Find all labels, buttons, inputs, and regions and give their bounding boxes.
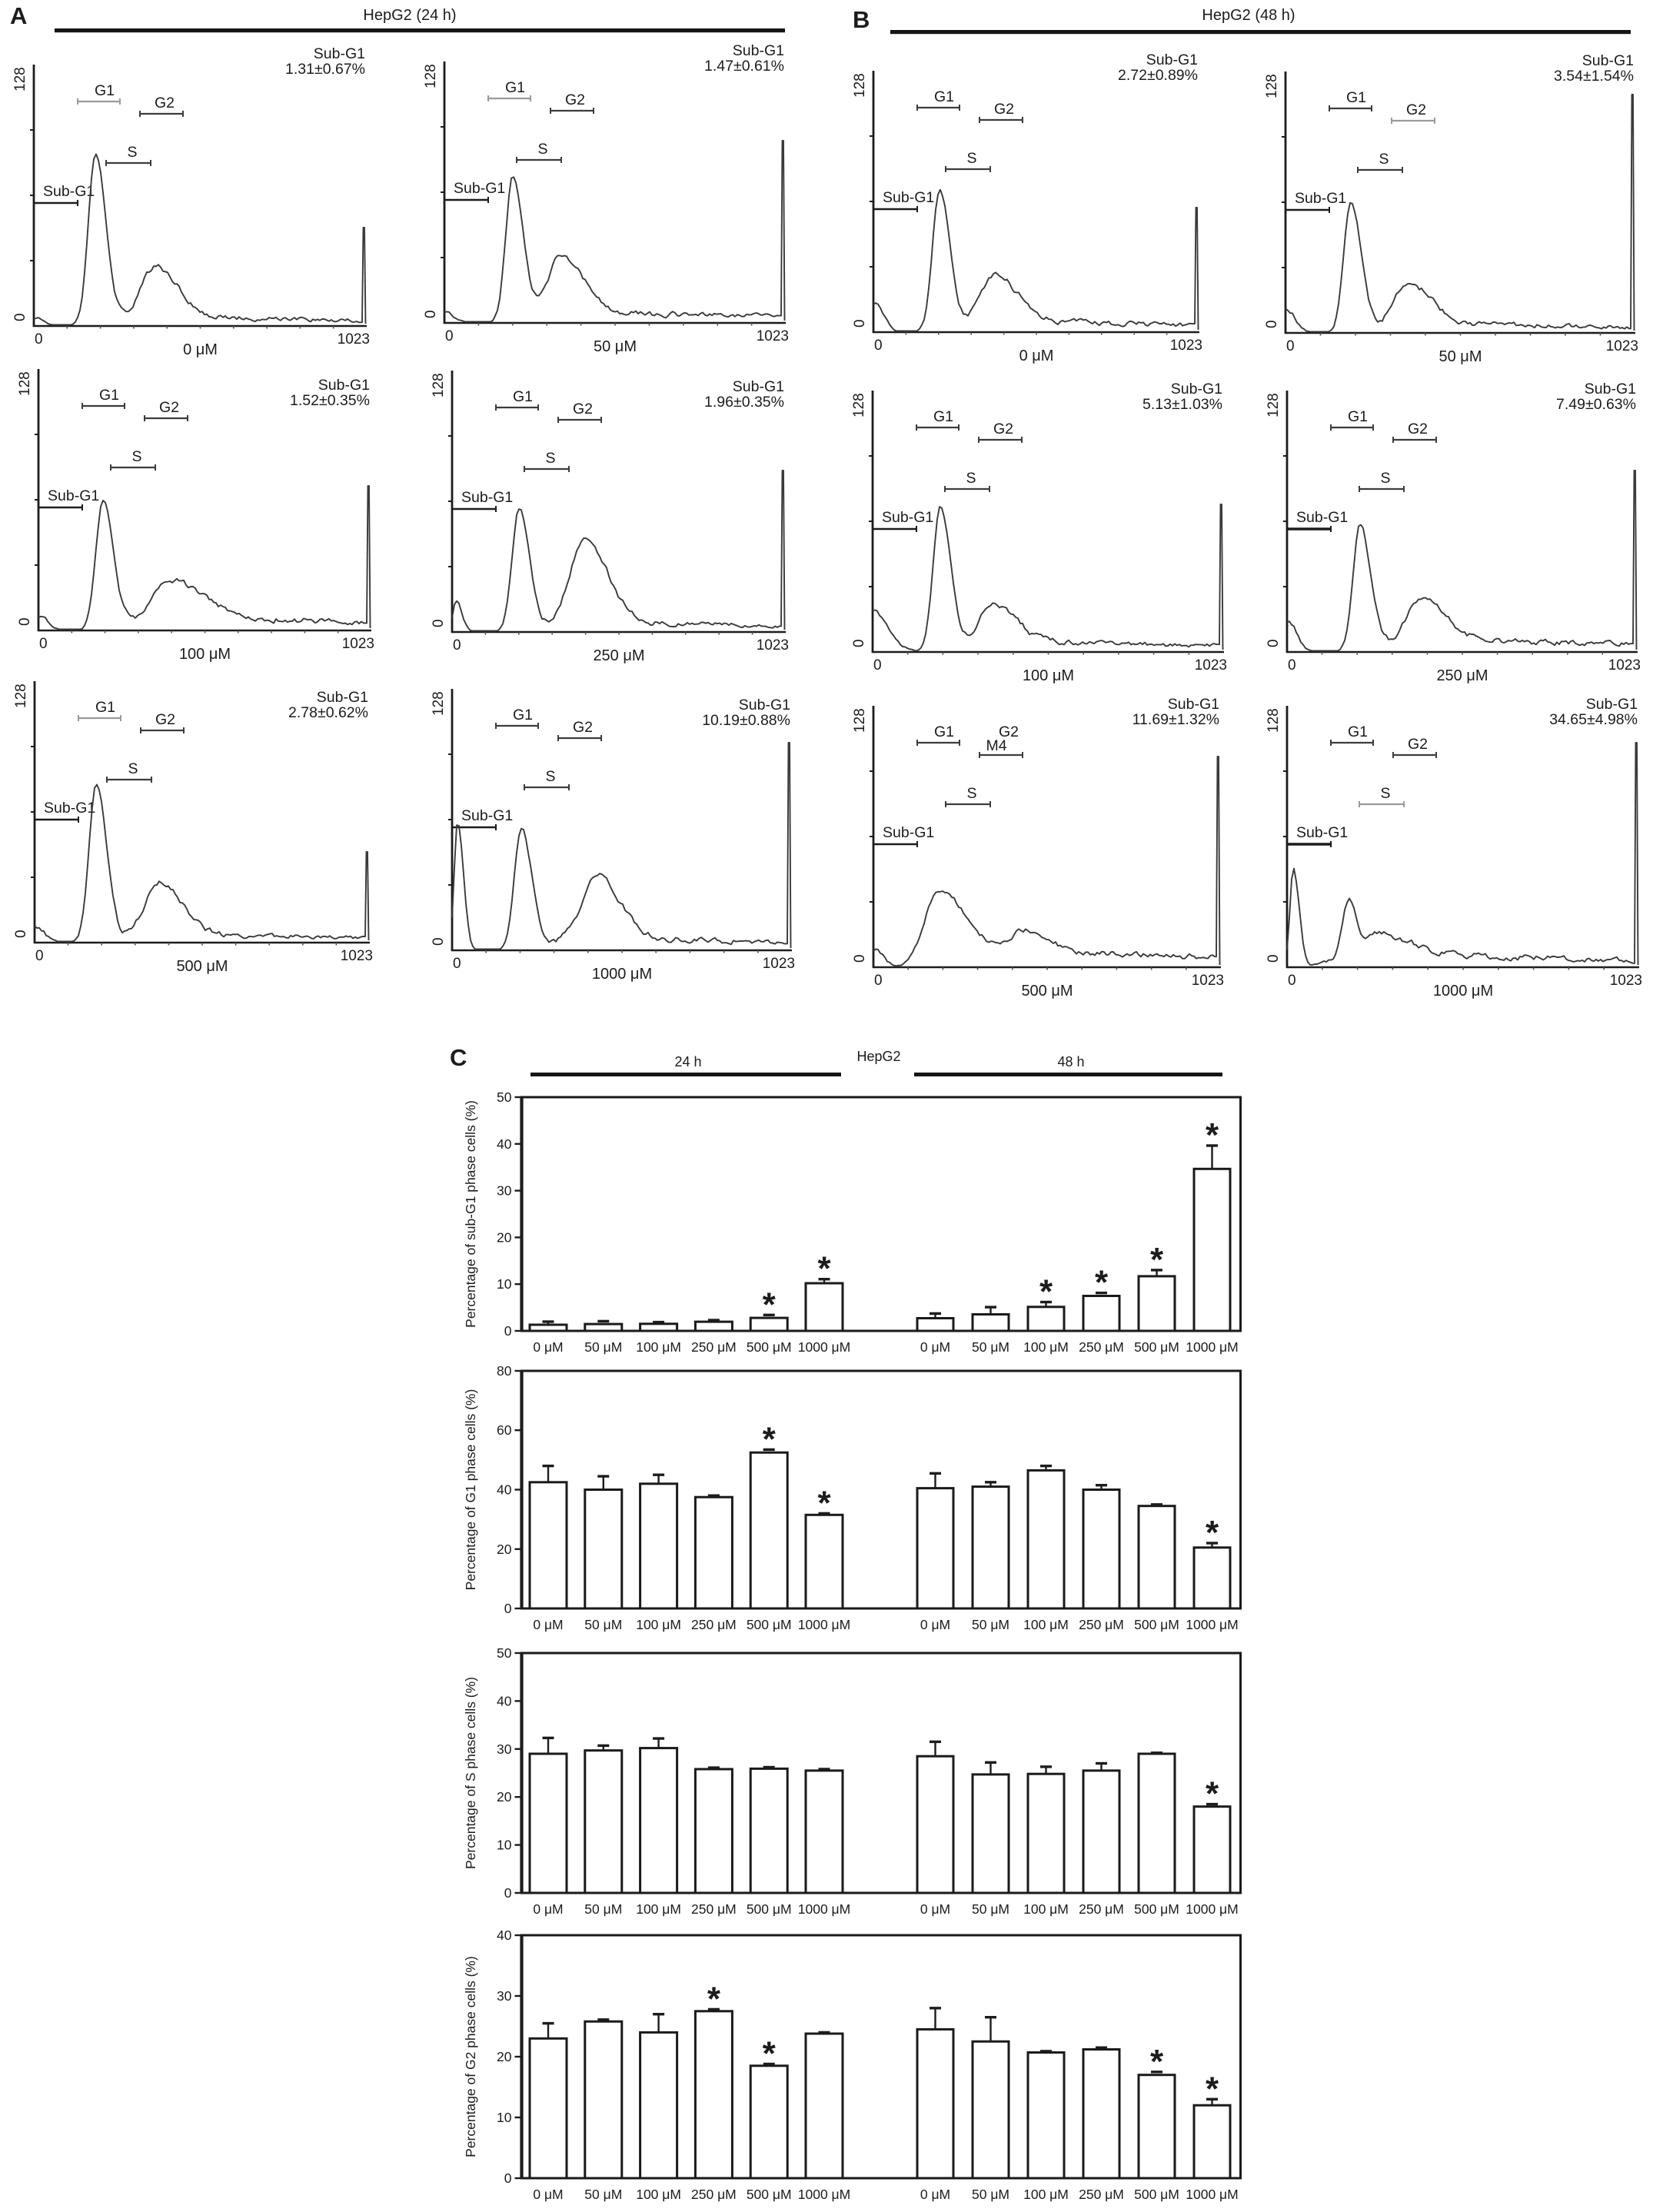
svg-text:50: 50 (497, 1645, 512, 1661)
svg-text:250 μM: 250 μM (691, 1339, 737, 1355)
svg-text:50 μM: 50 μM (972, 1617, 1009, 1632)
svg-text:Sub-G1: Sub-G1 (1168, 696, 1219, 713)
svg-text:1023: 1023 (338, 331, 370, 348)
svg-text:1023: 1023 (763, 956, 795, 972)
svg-text:50 μM: 50 μM (594, 338, 637, 355)
svg-text:Sub-G1: Sub-G1 (454, 180, 505, 197)
svg-text:0: 0 (873, 657, 882, 674)
svg-text:100 μM: 100 μM (636, 2187, 681, 2202)
svg-text:0 μM: 0 μM (533, 1617, 563, 1632)
svg-text:G1: G1 (933, 408, 953, 425)
svg-text:0: 0 (504, 1601, 512, 1616)
svg-text:1023: 1023 (341, 948, 373, 964)
svg-text:S: S (966, 150, 976, 167)
svg-text:1023: 1023 (1606, 338, 1638, 354)
svg-text:0: 0 (453, 637, 461, 654)
svg-text:0: 0 (12, 313, 28, 321)
svg-text:Sub-G1: Sub-G1 (1585, 381, 1636, 397)
svg-text:250 μM: 250 μM (1079, 2187, 1124, 2202)
svg-text:G2: G2 (159, 399, 179, 416)
svg-text:G2: G2 (1406, 101, 1426, 118)
svg-text:7.49±0.63%: 7.49±0.63% (1556, 396, 1636, 413)
svg-text:1000 μM: 1000 μM (1186, 2187, 1238, 2202)
svg-text:HepG2 (48 h): HepG2 (48 h) (1202, 7, 1295, 24)
svg-text:0: 0 (504, 1885, 512, 1901)
svg-text:128: 128 (1266, 393, 1282, 417)
svg-text:20: 20 (497, 1789, 512, 1805)
svg-text:128: 128 (1266, 708, 1282, 733)
svg-text:S: S (131, 448, 141, 465)
svg-text:*: * (1150, 2043, 1164, 2081)
svg-text:G1: G1 (934, 723, 954, 740)
svg-text:500 μM: 500 μM (747, 1617, 792, 1632)
svg-text:1023: 1023 (1192, 973, 1224, 989)
svg-text:G2: G2 (1408, 421, 1428, 437)
svg-text:100 μM: 100 μM (636, 1339, 681, 1355)
svg-text:1023: 1023 (1195, 657, 1227, 674)
svg-text:B: B (853, 6, 870, 33)
svg-text:G2: G2 (565, 91, 585, 108)
svg-text:Sub-G1: Sub-G1 (883, 824, 934, 841)
svg-text:500 μM: 500 μM (1134, 1901, 1179, 1917)
svg-text:128: 128 (431, 373, 447, 397)
svg-text:10: 10 (497, 1276, 512, 1292)
svg-text:500 μM: 500 μM (1134, 2187, 1179, 2202)
svg-text:0: 0 (1266, 954, 1282, 963)
svg-text:G1: G1 (95, 82, 115, 99)
svg-text:1000 μM: 1000 μM (798, 1339, 850, 1355)
svg-text:0: 0 (874, 338, 883, 354)
svg-text:Sub-G1: Sub-G1 (1296, 824, 1348, 841)
svg-text:1023: 1023 (342, 636, 374, 652)
svg-text:S: S (128, 760, 138, 777)
svg-text:*: * (763, 1420, 777, 1458)
svg-text:40: 40 (497, 1928, 512, 1943)
svg-text:G1: G1 (505, 79, 525, 96)
svg-text:S: S (1380, 470, 1390, 487)
svg-text:100 μM: 100 μM (179, 646, 231, 663)
svg-text:G2: G2 (573, 401, 593, 417)
svg-text:G1: G1 (1348, 723, 1368, 740)
svg-text:S: S (545, 450, 555, 467)
svg-text:*: * (1206, 1775, 1219, 1813)
svg-text:0: 0 (453, 956, 461, 972)
svg-text:100 μM: 100 μM (636, 1617, 681, 1632)
svg-text:250 μM: 250 μM (1079, 1901, 1124, 1917)
svg-text:Sub-G1: Sub-G1 (739, 697, 790, 713)
svg-text:80: 80 (497, 1363, 512, 1379)
svg-text:0 μM: 0 μM (183, 341, 218, 358)
svg-text:Sub-G1: Sub-G1 (882, 509, 933, 526)
svg-text:0: 0 (504, 2170, 512, 2186)
svg-text:A: A (10, 2, 27, 29)
svg-text:128: 128 (431, 691, 447, 716)
svg-text:0: 0 (13, 930, 29, 938)
svg-text:Sub-G1: Sub-G1 (1146, 52, 1198, 68)
svg-text:G2: G2 (573, 719, 593, 736)
svg-text:20: 20 (497, 2049, 512, 2064)
svg-text:100 μM: 100 μM (1023, 1617, 1069, 1632)
svg-text:1023: 1023 (757, 637, 789, 654)
svg-text:128: 128 (13, 684, 29, 708)
svg-text:40: 40 (497, 1693, 512, 1708)
svg-text:S: S (545, 768, 555, 785)
svg-text:0 μM: 0 μM (533, 2187, 563, 2202)
svg-text:Sub-G1: Sub-G1 (1295, 190, 1346, 207)
svg-text:*: * (1039, 1273, 1053, 1311)
svg-text:Sub-G1: Sub-G1 (733, 378, 784, 395)
svg-text:0: 0 (1288, 973, 1296, 989)
svg-text:*: * (763, 2035, 777, 2073)
svg-text:0 μM: 0 μM (920, 2187, 950, 2202)
svg-text:3.54±1.54%: 3.54±1.54% (1554, 68, 1634, 85)
svg-text:128: 128 (423, 64, 439, 88)
svg-text:0: 0 (35, 331, 43, 348)
svg-text:100 μM: 100 μM (1023, 667, 1074, 684)
svg-text:500 μM: 500 μM (747, 1901, 792, 1917)
svg-text:G1: G1 (1346, 89, 1366, 106)
svg-text:1.47±0.61%: 1.47±0.61% (704, 58, 784, 75)
svg-text:0: 0 (1266, 639, 1282, 647)
svg-text:24 h: 24 h (674, 1054, 701, 1069)
svg-text:1000 μM: 1000 μM (1186, 1901, 1238, 1917)
svg-text:0: 0 (851, 639, 867, 647)
svg-text:Sub-G1: Sub-G1 (48, 487, 99, 504)
svg-text:Sub-G1: Sub-G1 (43, 183, 95, 200)
svg-text:G1: G1 (95, 699, 115, 716)
svg-text:0: 0 (852, 954, 868, 963)
svg-text:0: 0 (35, 948, 44, 964)
svg-text:*: * (1206, 1514, 1219, 1552)
svg-text:*: * (763, 1286, 777, 1323)
svg-text:250 μM: 250 μM (593, 647, 644, 664)
svg-text:0 μM: 0 μM (920, 1339, 950, 1355)
svg-text:1023: 1023 (757, 328, 789, 344)
svg-text:1000 μM: 1000 μM (1433, 983, 1493, 1000)
svg-text:50 μM: 50 μM (972, 1339, 1009, 1355)
svg-text:250 μM: 250 μM (1436, 667, 1488, 684)
svg-text:60: 60 (497, 1422, 512, 1438)
svg-text:0: 0 (39, 636, 48, 652)
svg-text:30: 30 (497, 1988, 512, 2004)
svg-text:0: 0 (17, 617, 33, 626)
svg-text:S: S (127, 144, 137, 161)
svg-text:*: * (1206, 1116, 1219, 1154)
svg-text:50: 50 (497, 1089, 512, 1105)
svg-text:Sub-G1: Sub-G1 (1296, 509, 1348, 526)
svg-text:50 μM: 50 μM (972, 1901, 1009, 1917)
svg-text:0 μM: 0 μM (533, 1339, 563, 1355)
svg-text:128: 128 (852, 708, 868, 733)
svg-text:0: 0 (852, 319, 868, 328)
svg-text:1000 μM: 1000 μM (798, 1617, 850, 1632)
svg-text:G2: G2 (155, 95, 175, 111)
svg-text:0: 0 (431, 619, 447, 627)
svg-text:50 μM: 50 μM (584, 1339, 622, 1355)
svg-text:G2: G2 (993, 421, 1013, 437)
svg-text:40: 40 (497, 1136, 512, 1152)
svg-text:100 μM: 100 μM (636, 1901, 681, 1917)
svg-text:0: 0 (423, 310, 439, 318)
svg-text:20: 20 (497, 1229, 512, 1245)
svg-text:G1: G1 (1348, 408, 1368, 425)
svg-text:30: 30 (497, 1741, 512, 1757)
svg-text:500 μM: 500 μM (747, 1339, 792, 1355)
svg-text:HepG2 (24 h): HepG2 (24 h) (363, 7, 456, 24)
svg-text:250 μM: 250 μM (1079, 1617, 1124, 1632)
svg-text:1000 μM: 1000 μM (1186, 1617, 1238, 1632)
svg-text:0: 0 (1288, 657, 1296, 674)
svg-text:Sub-G1: Sub-G1 (44, 800, 95, 817)
svg-text:2.72±0.89%: 2.72±0.89% (1118, 67, 1198, 84)
svg-text:5.13±1.03%: 5.13±1.03% (1142, 396, 1222, 413)
svg-text:250 μM: 250 μM (691, 2187, 737, 2202)
svg-text:Sub-G1: Sub-G1 (314, 45, 365, 62)
svg-text:10: 10 (497, 1838, 512, 1853)
svg-text:G1: G1 (934, 88, 954, 105)
svg-text:*: * (1095, 1264, 1109, 1302)
svg-text:Sub-G1: Sub-G1 (461, 807, 513, 824)
svg-text:2.78±0.62%: 2.78±0.62% (288, 704, 368, 721)
svg-text:1000 μM: 1000 μM (798, 1901, 850, 1917)
svg-text:1000 μM: 1000 μM (798, 2187, 850, 2202)
svg-text:Sub-G1: Sub-G1 (1171, 381, 1222, 397)
svg-text:C: C (450, 1044, 467, 1071)
svg-text:0 μM: 0 μM (920, 1617, 950, 1632)
svg-text:Sub-G1: Sub-G1 (883, 189, 934, 206)
svg-text:250 μM: 250 μM (1079, 1339, 1124, 1355)
svg-text:1023: 1023 (1610, 973, 1642, 989)
svg-text:50 μM: 50 μM (584, 2187, 622, 2202)
svg-text:Sub-G1: Sub-G1 (318, 377, 370, 394)
svg-text:500 μM: 500 μM (1021, 983, 1073, 1000)
svg-text:128: 128 (851, 393, 867, 417)
svg-text:50 μM: 50 μM (584, 1617, 622, 1632)
svg-text:40: 40 (497, 1482, 512, 1498)
svg-text:128: 128 (12, 67, 28, 91)
svg-text:0: 0 (874, 973, 883, 989)
svg-text:1.52±0.35%: 1.52±0.35% (290, 392, 370, 409)
svg-text:*: * (817, 1250, 831, 1288)
svg-text:100 μM: 100 μM (1023, 1339, 1069, 1355)
svg-text:G1: G1 (99, 387, 119, 404)
svg-text:0: 0 (1264, 320, 1280, 328)
svg-text:100 μM: 100 μM (1023, 1901, 1069, 1917)
svg-text:20: 20 (497, 1542, 512, 1557)
svg-text:0 μM: 0 μM (920, 1901, 950, 1917)
svg-text:50 μM: 50 μM (972, 2187, 1009, 2202)
svg-text:G2: G2 (1408, 736, 1428, 753)
svg-text:10.19±0.88%: 10.19±0.88% (702, 712, 790, 729)
svg-text:Percentage of sub-G1 phase cel: Percentage of sub-G1 phase cells (%) (463, 1100, 478, 1328)
svg-text:Percentage of G2 phase cells (: Percentage of G2 phase cells (%) (463, 1956, 478, 2157)
svg-text:*: * (1150, 1241, 1164, 1279)
svg-text:500 μM: 500 μM (747, 2187, 792, 2202)
svg-text:48 h: 48 h (1057, 1054, 1084, 1069)
svg-text:128: 128 (1264, 74, 1280, 98)
svg-text:500 μM: 500 μM (176, 958, 228, 975)
svg-text:0 μM: 0 μM (533, 1901, 563, 1917)
svg-text:100 μM: 100 μM (1023, 2187, 1069, 2202)
svg-text:Sub-G1: Sub-G1 (733, 42, 784, 59)
svg-text:500 μM: 500 μM (1134, 1617, 1179, 1632)
svg-text:1023: 1023 (1170, 338, 1202, 354)
svg-text:50 μM: 50 μM (584, 1901, 622, 1917)
svg-text:50 μM: 50 μM (1439, 348, 1482, 365)
svg-text:30: 30 (497, 1183, 512, 1199)
svg-text:G1: G1 (513, 388, 533, 405)
svg-text:0: 0 (1286, 338, 1295, 354)
svg-text:Percentage of S phase cells (%: Percentage of S phase cells (%) (463, 1677, 478, 1869)
svg-text:G2: G2 (155, 711, 175, 728)
svg-text:*: * (1206, 2070, 1219, 2107)
svg-text:Sub-G1: Sub-G1 (461, 489, 513, 506)
svg-text:0 μM: 0 μM (1019, 348, 1054, 364)
svg-text:500 μM: 500 μM (1134, 1339, 1179, 1355)
svg-text:1.96±0.35%: 1.96±0.35% (704, 394, 784, 411)
svg-text:0: 0 (445, 328, 454, 344)
svg-text:34.65±4.98%: 34.65±4.98% (1549, 711, 1638, 728)
svg-text:250 μM: 250 μM (691, 1901, 737, 1917)
svg-text:1000 μM: 1000 μM (1186, 1339, 1238, 1355)
svg-text:1000 μM: 1000 μM (592, 966, 652, 983)
svg-text:Sub-G1: Sub-G1 (1586, 696, 1638, 713)
svg-text:G2: G2 (994, 101, 1014, 118)
svg-text:0: 0 (504, 1323, 512, 1339)
svg-text:Percentage of G1 phase cells (: Percentage of G1 phase cells (%) (463, 1389, 478, 1591)
svg-text:128: 128 (852, 73, 868, 98)
svg-text:S: S (1379, 151, 1389, 168)
svg-text:Sub-G1: Sub-G1 (317, 689, 368, 706)
svg-text:11.69±1.32%: 11.69±1.32% (1132, 711, 1219, 728)
svg-text:10: 10 (497, 2110, 512, 2125)
svg-text:S: S (966, 785, 976, 802)
svg-text:HepG2: HepG2 (856, 1049, 900, 1064)
svg-text:1.31±0.67%: 1.31±0.67% (285, 61, 365, 78)
svg-text:G1: G1 (513, 707, 533, 723)
svg-text:250 μM: 250 μM (691, 1617, 737, 1632)
svg-text:1023: 1023 (1608, 657, 1641, 674)
svg-text:*: * (707, 1980, 721, 2017)
svg-text:S: S (537, 141, 547, 158)
svg-text:0: 0 (431, 937, 447, 946)
svg-text:S: S (1380, 785, 1390, 802)
svg-text:M4: M4 (986, 737, 1006, 754)
svg-text:S: S (966, 470, 976, 487)
svg-text:Sub-G1: Sub-G1 (1582, 52, 1634, 69)
svg-text:*: * (817, 1484, 831, 1522)
svg-text:128: 128 (17, 371, 33, 396)
